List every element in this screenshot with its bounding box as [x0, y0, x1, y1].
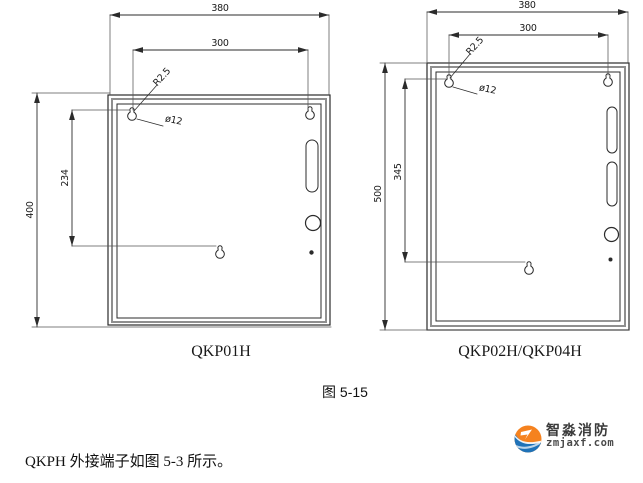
right-lock-circle: [605, 228, 619, 242]
left-dim-380-label: 380: [211, 3, 228, 14]
manual-page: 380 300 400 234 R2.5: [0, 0, 643, 483]
right-dim-345-label: 345: [393, 163, 404, 180]
left-radius-label: R2.5: [151, 66, 173, 89]
brand-logo: 智淼消防 zmjaxf.com: [514, 423, 614, 453]
keyhole-top-left: [445, 75, 454, 87]
left-handle-slot: [306, 140, 318, 192]
left-indicator-dot: [309, 250, 313, 254]
brand-site: zmjaxf.com: [546, 438, 614, 449]
right-panel-frame: [427, 63, 629, 330]
left-callout-hole-diameter: ø12: [137, 113, 183, 127]
right-indicator-dot: [609, 258, 613, 262]
right-radius-label: R2.5: [464, 35, 486, 58]
left-dim-hole-spacing-v: 234: [60, 110, 216, 246]
left-dim-234-label: 234: [60, 169, 71, 186]
right-dim-380-label: 380: [518, 0, 535, 11]
right-panel-drawing: 380 300 500 345 R2.5: [373, 0, 629, 330]
right-diameter-label: ø12: [478, 82, 497, 96]
body-paragraph: QKPH 外接端子如图 5-3 所示。: [25, 450, 232, 471]
right-dim-500-label: 500: [373, 185, 384, 202]
right-handle-slot-2: [607, 162, 617, 206]
left-dim-overall-height: 400: [25, 93, 331, 327]
left-diameter-label: ø12: [164, 113, 183, 127]
left-dim-300-label: 300: [211, 38, 228, 49]
keyhole-top-right: [306, 107, 315, 119]
keyhole-bottom-center: [216, 246, 225, 258]
figure-caption: 图 5-15: [300, 382, 390, 402]
left-panel-model-label: QKP01H: [191, 343, 251, 361]
flame-wave-logo-icon: [514, 425, 542, 453]
right-handle-slot-1: [607, 107, 617, 153]
left-dim-400-label: 400: [25, 201, 36, 218]
left-panel-drawing: 380 300 400 234 R2.5: [25, 3, 331, 327]
left-lock-circle: [306, 216, 321, 231]
brand-name: 智淼消防: [546, 423, 614, 437]
right-dim-300-label: 300: [519, 23, 536, 34]
right-mounting-holes: [445, 74, 613, 274]
keyhole-bottom-center: [525, 262, 534, 274]
keyhole-top-right: [604, 74, 613, 86]
left-mounting-holes: [128, 107, 315, 258]
left-panel-frame: [108, 95, 330, 325]
right-callout-hole-diameter: ø12: [453, 82, 497, 96]
right-dim-hole-spacing-v: 345: [393, 79, 525, 262]
right-dim-overall-height: 500: [373, 63, 629, 330]
right-panel-model-label: QKP02H/QKP04H: [458, 343, 582, 361]
